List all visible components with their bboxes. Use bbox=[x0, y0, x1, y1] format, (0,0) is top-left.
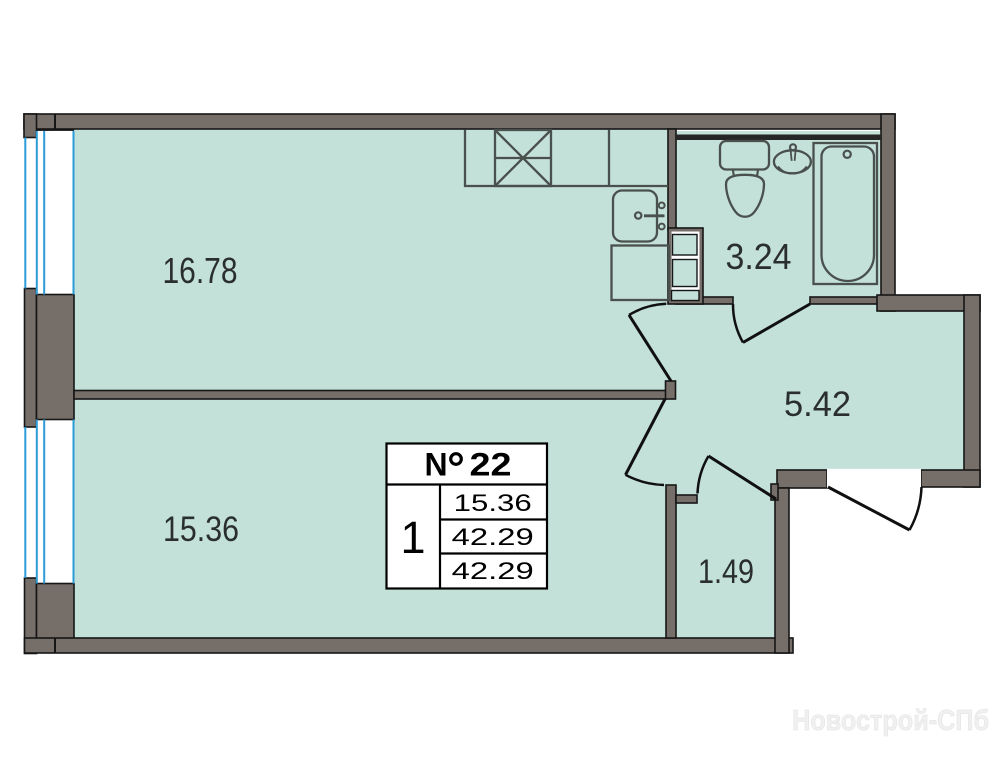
svg-text:N: N bbox=[425, 447, 448, 483]
svg-text:Новострой-СПб: Новострой-СПб bbox=[792, 705, 989, 737]
svg-text:42.29: 42.29 bbox=[452, 524, 534, 551]
svg-text:3.24: 3.24 bbox=[726, 236, 792, 277]
svg-text:15.36: 15.36 bbox=[163, 510, 239, 549]
svg-text:15.36: 15.36 bbox=[454, 490, 532, 517]
svg-text:1.49: 1.49 bbox=[698, 553, 754, 591]
svg-text:5.42: 5.42 bbox=[784, 385, 851, 424]
svg-text:1: 1 bbox=[400, 512, 425, 563]
svg-text:42.29: 42.29 bbox=[452, 558, 534, 585]
svg-text:16.78: 16.78 bbox=[163, 250, 238, 291]
svg-text:22: 22 bbox=[470, 447, 512, 483]
